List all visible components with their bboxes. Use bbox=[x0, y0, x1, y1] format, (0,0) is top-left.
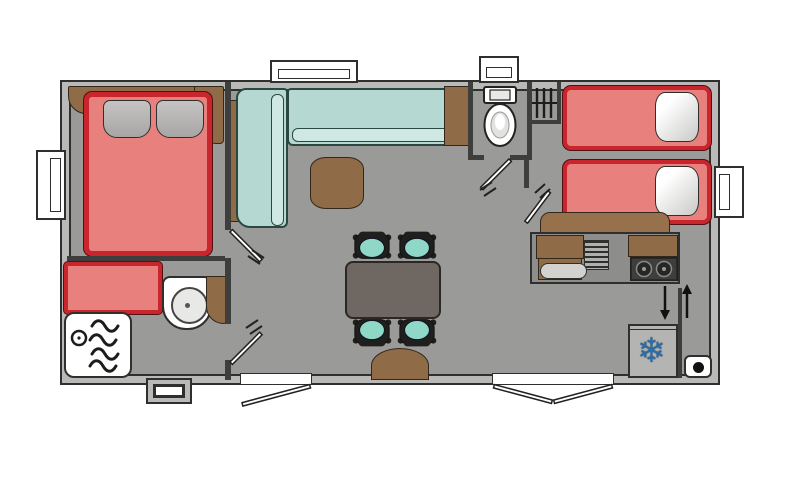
dining-chair-2 bbox=[396, 230, 438, 262]
double-door-left-leaf bbox=[493, 385, 552, 404]
window-bottom-small bbox=[146, 378, 192, 404]
kitchen-cabinet-right bbox=[628, 235, 678, 257]
wall-bathroom-top bbox=[67, 256, 225, 261]
corner-sofa-horizontal bbox=[287, 88, 459, 146]
single-exterior-door-leaf bbox=[242, 385, 311, 406]
bathroom-corner-shelf bbox=[206, 276, 227, 324]
single-door-opening bbox=[240, 373, 312, 385]
kitchen-cabinet-top-left bbox=[536, 235, 584, 259]
entrance-partition-wall bbox=[678, 288, 682, 378]
pillow-bottom-bed bbox=[655, 166, 699, 216]
wall-closet-east bbox=[557, 82, 561, 124]
window-top-living bbox=[270, 60, 358, 83]
window-right bbox=[714, 166, 744, 218]
pillow-left bbox=[103, 100, 151, 138]
dining-chair-3 bbox=[351, 316, 393, 348]
toilet bbox=[481, 86, 519, 148]
living-cabinet bbox=[444, 86, 471, 146]
rail-closet bbox=[531, 84, 558, 122]
wall-bedroom-east-mid bbox=[225, 258, 231, 324]
double-door-opening bbox=[492, 373, 614, 385]
coffee-table bbox=[310, 157, 364, 209]
wall-wc-south-left bbox=[468, 155, 484, 160]
bathroom-bench bbox=[64, 262, 162, 314]
wall-closet-bottom bbox=[532, 120, 560, 124]
snowflake-icon: ❄ bbox=[637, 334, 666, 368]
kitchen-sink bbox=[540, 263, 587, 279]
wall-wc-west bbox=[468, 82, 473, 160]
twin-bedroom-desk bbox=[540, 212, 670, 234]
pillow-top-bed bbox=[655, 92, 699, 142]
wall-hall-twinroom bbox=[524, 160, 529, 188]
corner-sofa-vertical bbox=[236, 88, 288, 228]
sink-drainer-rack bbox=[584, 240, 609, 270]
dining-table bbox=[345, 261, 441, 319]
heater-dot-icon bbox=[693, 362, 704, 373]
wall-bedroom-east-top bbox=[225, 82, 231, 230]
heater-box bbox=[684, 355, 712, 378]
entry-step-arch bbox=[371, 348, 429, 380]
pillow-right bbox=[156, 100, 204, 138]
washbasin bbox=[162, 276, 212, 330]
shower-waves-and-drain-icon bbox=[66, 314, 130, 376]
shower-tray bbox=[64, 312, 132, 378]
window-left bbox=[36, 150, 66, 220]
dining-chair-4 bbox=[396, 316, 438, 348]
window-top-wc bbox=[479, 56, 519, 83]
double-door-right-leaf bbox=[554, 385, 613, 404]
fridge: ❄ bbox=[628, 324, 678, 378]
floor-plan-canvas: ❄ bbox=[0, 0, 796, 480]
wall-bedroom-east-bottom bbox=[225, 360, 231, 380]
dining-chair-1 bbox=[351, 230, 393, 262]
two-burner-hob bbox=[630, 257, 678, 281]
